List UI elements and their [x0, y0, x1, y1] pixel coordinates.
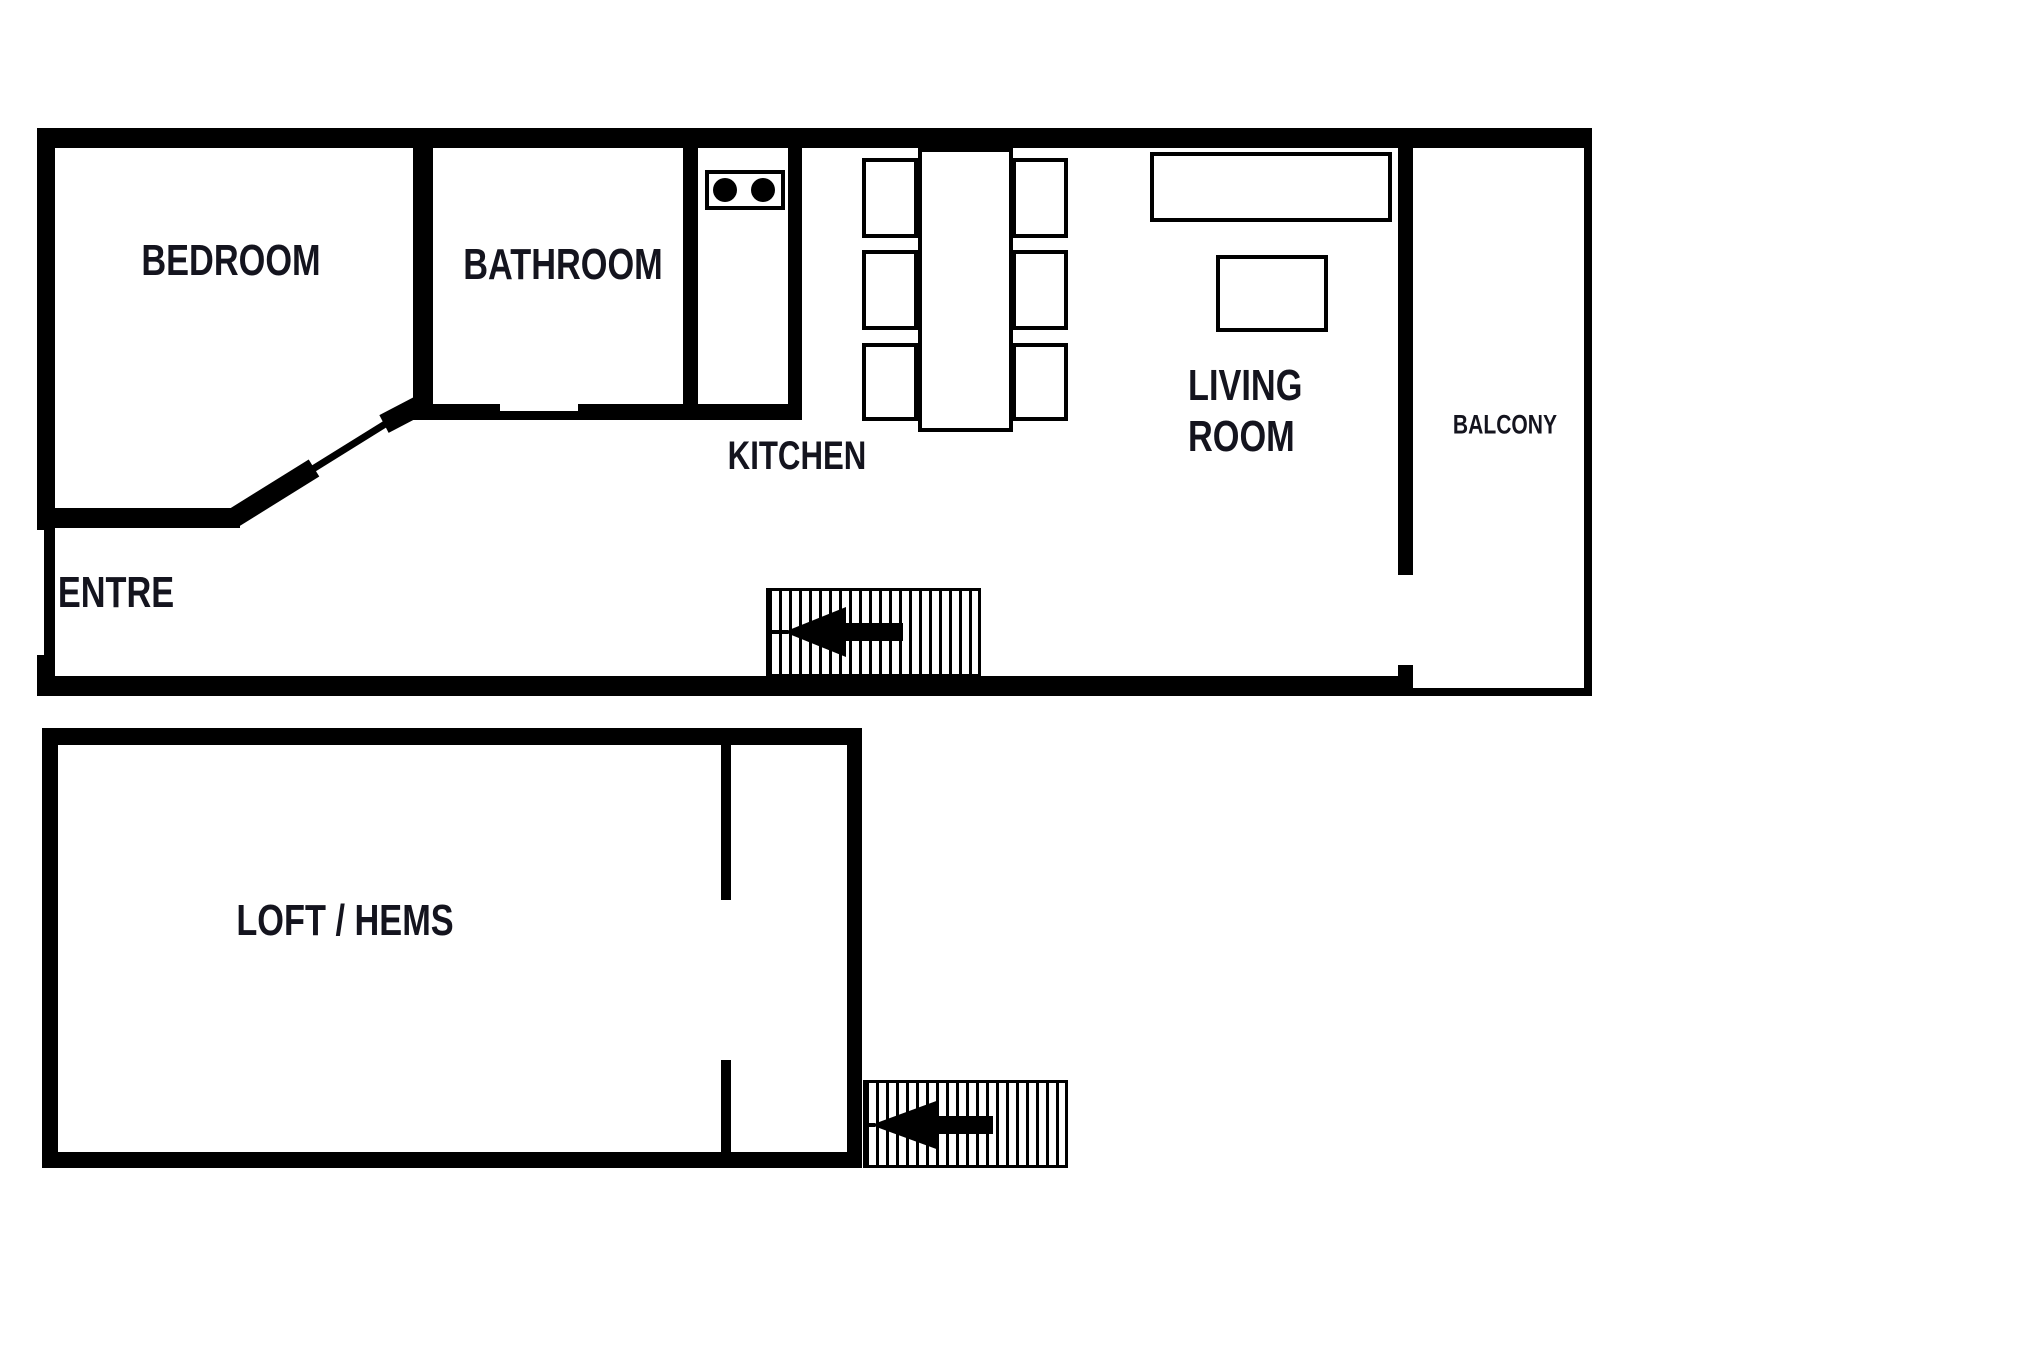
loft-top-wall	[42, 728, 862, 745]
living-balcony-wall	[1398, 148, 1413, 575]
bathroom-bottom-wall-left	[413, 404, 500, 420]
bathroom-door-opening	[500, 411, 578, 420]
bathroom-label: BATHROOM	[463, 243, 663, 287]
balcony-bottom-wall	[1413, 688, 1592, 696]
stove-two-burner-icon	[705, 170, 785, 210]
upper-left-wall	[37, 128, 55, 530]
loft-bottom-wall	[42, 1152, 862, 1168]
bedroom-bottom-wall	[37, 508, 240, 528]
loft-left-wall	[42, 728, 58, 1168]
living-room-label: LIVING ROOM	[1188, 360, 1302, 462]
kitchen-counter-right-wall	[788, 148, 802, 404]
dining-chair	[1012, 158, 1068, 238]
stove-burner-icon	[751, 178, 775, 202]
bedroom-bathroom-wall	[413, 148, 433, 420]
dining-chair	[862, 343, 918, 421]
entre-door-opening	[44, 530, 55, 655]
sofa	[1150, 152, 1392, 222]
loft-label: LOFT / HEMS	[236, 899, 453, 943]
dining-chair	[1012, 343, 1068, 421]
balcony-right-wall	[1584, 128, 1592, 696]
dining-chair	[1012, 250, 1068, 330]
bathroom-kitchen-wall	[683, 148, 698, 404]
upper-top-wall	[37, 128, 1590, 148]
bedroom-diagonal-wall	[232, 468, 314, 519]
stove-burner-icon	[713, 178, 737, 202]
living-room-label-line2: ROOM	[1188, 411, 1302, 462]
living-balcony-wall-stub	[1398, 665, 1413, 696]
bedroom-label: BEDROOM	[141, 239, 320, 283]
balcony-label: BALCONY	[1453, 412, 1557, 439]
dining-chair	[862, 250, 918, 330]
bedroom-diagonal-door-opening	[308, 421, 390, 472]
living-room-label-line1: LIVING	[1188, 360, 1302, 411]
dining-chair	[862, 158, 918, 238]
loft-inner-wall-upper	[721, 745, 731, 900]
bathroom-kitchen-bottom-wall	[578, 404, 802, 420]
kitchen-label: KITCHEN	[728, 436, 867, 476]
loft-right-wall	[847, 728, 862, 1168]
staircase-upper	[766, 588, 981, 677]
staircase-lower	[863, 1080, 1068, 1168]
entre-label: ENTRE	[58, 571, 174, 615]
dining-table	[918, 148, 1013, 432]
upper-bottom-wall	[37, 676, 1413, 696]
floor-plan-canvas: BEDROOM BATHROOM KITCHEN LIVING ROOM BAL…	[0, 0, 2043, 1365]
coffee-table	[1216, 255, 1328, 332]
loft-inner-wall-lower	[721, 1060, 731, 1152]
